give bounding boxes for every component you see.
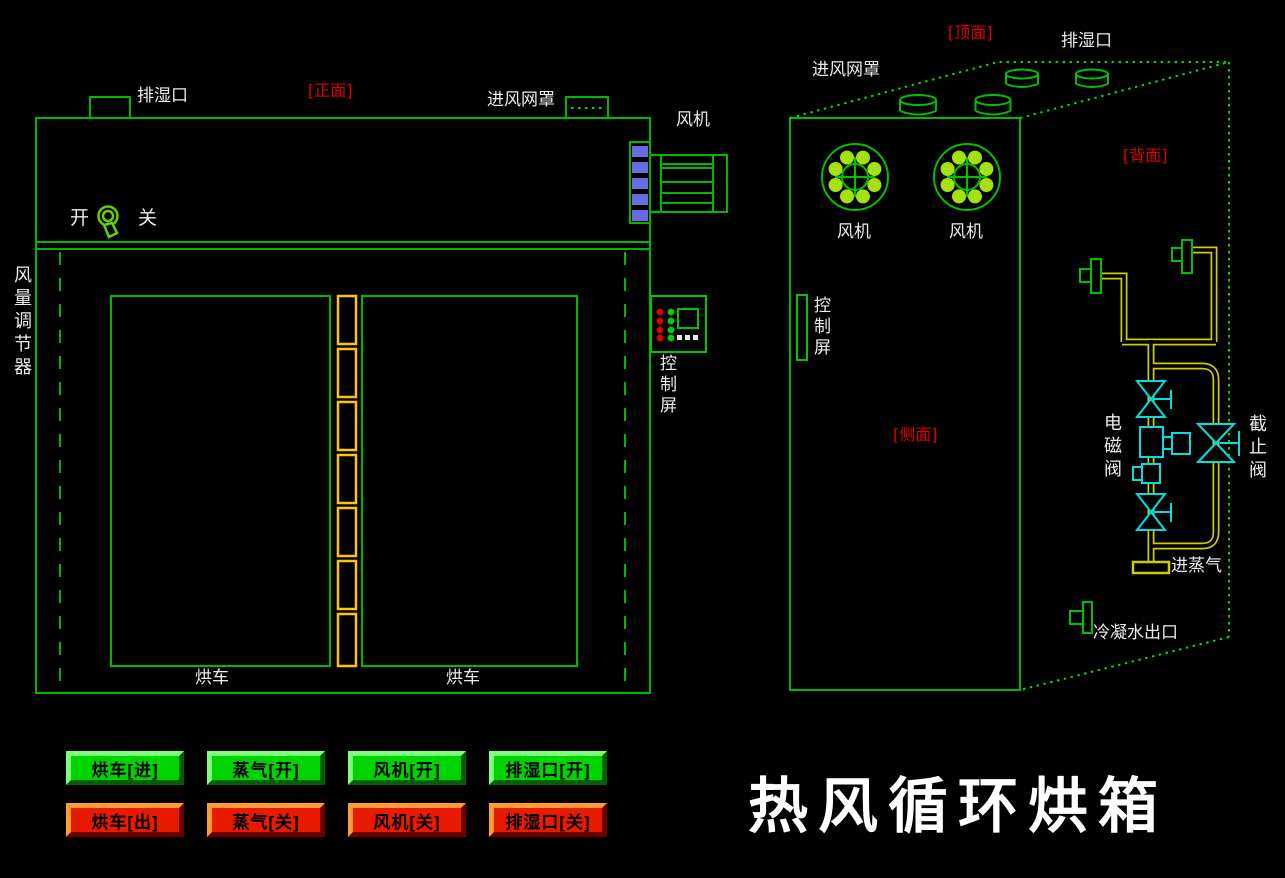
cart-out-button[interactable]: 烘车[出] — [66, 803, 184, 837]
stop-valve-label: 截止阀 — [1247, 414, 1265, 483]
hmi-screen: 排湿口 [正面] 进风网罩 开 关 风机 风量调节器 控制屏 烘车 烘车 进风网… — [0, 0, 1285, 878]
exhaust-close-button[interactable]: 排湿口[关] — [489, 803, 607, 837]
steam-off-button[interactable]: 蒸气[关] — [207, 803, 325, 837]
side-fan-left-label: 风机 — [837, 223, 871, 242]
front-right-door — [362, 296, 577, 666]
side-fan-right-label: 风机 — [949, 223, 983, 242]
top-face-label: [顶面] — [948, 24, 993, 42]
condensate-outlet-label: 冷凝水出口 — [1093, 624, 1178, 643]
fan-on-button[interactable]: 风机[开] — [348, 751, 466, 785]
front-exhaust-label: 排湿口 — [137, 87, 188, 106]
panel-indicator-squares — [677, 335, 698, 340]
front-cabinet-outline — [36, 118, 650, 693]
steam-on-button[interactable]: 蒸气[开] — [207, 751, 325, 785]
oven-diagram — [0, 0, 1285, 878]
front-inlet-mesh-label: 进风网罩 — [487, 91, 555, 110]
side-inlet-mesh-label: 进风网罩 — [812, 61, 880, 80]
valves — [1133, 381, 1239, 530]
side-face-label: [侧面] — [893, 426, 938, 444]
solenoid-valve-label: 电磁阀 — [1102, 413, 1120, 482]
fan-coupling-stripes — [632, 146, 648, 221]
front-fan-label: 风机 — [676, 111, 710, 130]
fan-right-icon — [934, 144, 1000, 210]
page-title: 热风循环烘箱 — [748, 758, 1168, 845]
side-control-screen-label: 控制屏 — [811, 296, 828, 359]
air-regulator-label: 风量调节器 — [12, 265, 30, 380]
front-control-screen-label: 控制屏 — [657, 354, 674, 417]
solenoid-valve-bottom[interactable] — [1137, 494, 1171, 530]
front-exhaust-vent — [90, 97, 130, 118]
cart-in-button[interactable]: 烘车[进] — [66, 751, 184, 785]
roof-vent-cylinders — [900, 70, 1108, 115]
back-flange-left — [1080, 259, 1101, 293]
side-control-screen — [797, 295, 807, 360]
switch-on-label: 开 — [70, 208, 89, 229]
key-switch-icon[interactable] — [99, 207, 118, 238]
door-hinge-strip — [338, 296, 356, 666]
panel-led-green — [668, 309, 675, 342]
panel-screen — [678, 309, 698, 328]
front-view-drawing — [36, 97, 727, 693]
steam-inlet-label: 进蒸气 — [1171, 557, 1222, 576]
steam-inlet-flange — [1133, 562, 1169, 573]
front-section-label: [正面] — [308, 82, 353, 100]
exhaust-open-button[interactable]: 排湿口[开] — [489, 751, 607, 785]
switch-off-label: 关 — [138, 208, 157, 229]
back-flange-right — [1172, 240, 1192, 273]
fan-motor — [650, 155, 727, 212]
side-exhaust-label: 排湿口 — [1061, 32, 1112, 51]
cart-left-label: 烘车 — [195, 669, 229, 688]
condensate-outlet-flange — [1070, 602, 1092, 633]
solenoid-valve-body[interactable] — [1133, 427, 1190, 483]
fan-left-icon — [822, 144, 888, 210]
fan-off-button[interactable]: 风机[关] — [348, 803, 466, 837]
solenoid-valve-top[interactable] — [1137, 381, 1171, 417]
control-panel[interactable] — [651, 296, 706, 352]
cart-right-label: 烘车 — [446, 669, 480, 688]
panel-led-red — [657, 309, 664, 342]
front-left-door — [111, 296, 330, 666]
back-face-label: [背面] — [1123, 147, 1168, 165]
